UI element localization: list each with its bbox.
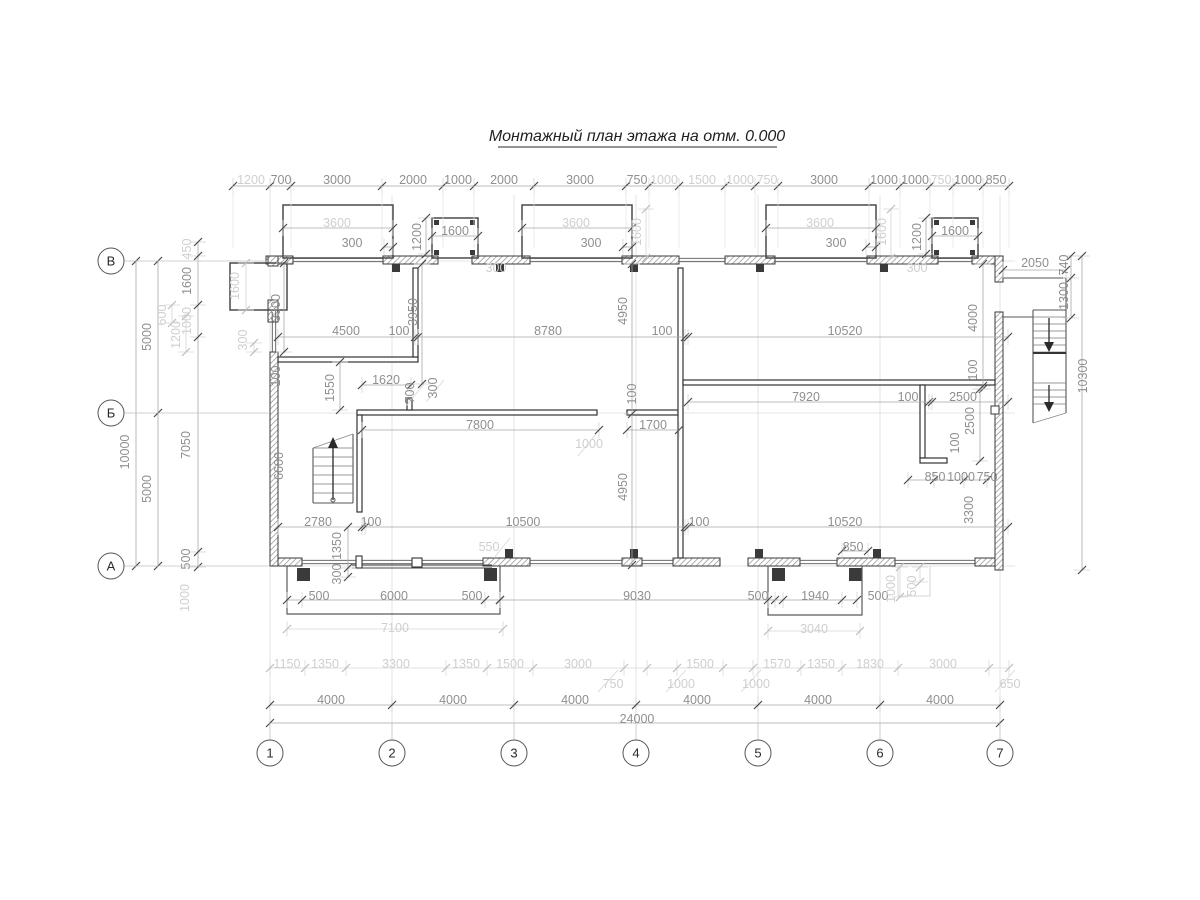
drawing-sheet: Монтажный план этажа на отм. 0.000 12007…: [0, 0, 1200, 900]
dimension-label: 1200: [910, 223, 924, 251]
dimension-label: 3000: [564, 657, 592, 671]
dimension-label: 850: [843, 540, 864, 554]
dimension-label: 500: [462, 589, 483, 603]
dimension-label: 300: [236, 330, 250, 351]
pilaster: [873, 549, 881, 558]
wall-segment: [748, 558, 800, 566]
axis-label: 7: [996, 746, 1003, 761]
dimension-label: 1350: [452, 657, 480, 671]
dimension-label: 2780: [304, 515, 332, 529]
dimension-label: 1000: [178, 584, 192, 612]
dimension-label: 1000: [947, 470, 975, 484]
partition-wall: [357, 415, 362, 512]
dimension-label: 3000: [566, 173, 594, 187]
dimension-label: 600: [155, 305, 169, 326]
dimension-label: 4950: [616, 473, 630, 501]
dimension-label: 1150: [274, 657, 301, 671]
wall-segment: [673, 558, 720, 566]
dimension-label: 1300: [1057, 282, 1071, 310]
exterior-walls: [266, 256, 1003, 581]
partition-wall: [683, 380, 995, 385]
dimension-label: 100: [269, 366, 283, 387]
dimension-label: 1600: [441, 224, 469, 238]
dimension-label: 3950: [406, 298, 420, 326]
dimension-label: 4500: [332, 324, 360, 338]
dimension-label: 500: [748, 589, 769, 603]
partition-wall: [920, 385, 925, 458]
dimension-label: 100: [652, 324, 673, 338]
dimension-label: 750: [627, 173, 648, 187]
dimension-label: 1620: [372, 373, 400, 387]
dimension-label: 6600: [272, 452, 286, 480]
dimension-label: 3300: [382, 657, 410, 671]
dimension-label: 3600: [806, 216, 834, 230]
dimension-label: 7800: [466, 418, 494, 432]
wall-segment: [995, 256, 1003, 282]
dimension-label: 1000: [742, 677, 770, 691]
drawing-title: Монтажный план этажа на отм. 0.000: [489, 128, 785, 147]
dimension-label: 7100: [381, 621, 409, 635]
porch-column: [484, 568, 497, 581]
wall-niche: [991, 406, 999, 414]
dimension-labels: 1200700300020001000200030007501000150010…: [118, 173, 1090, 726]
axis-label: 3: [510, 746, 517, 761]
dimension-label: 2000: [399, 173, 427, 187]
dimension-label: 1000: [884, 575, 898, 603]
dimension-label: 2000: [490, 173, 518, 187]
dimension-label: 24000: [620, 712, 655, 726]
dimension-label: 1600: [180, 267, 194, 295]
dimension-label: 1550: [323, 374, 337, 402]
pilaster: [880, 264, 888, 272]
wall-segment: [837, 558, 895, 566]
dimension-label: 100: [361, 515, 382, 529]
dimension-label: 1350: [330, 532, 344, 560]
dimension-label: 5000: [140, 323, 154, 351]
porch-column: [849, 568, 862, 581]
dimension-label: 300: [342, 236, 363, 250]
partition-wall: [920, 458, 947, 463]
canopy-columns: [434, 220, 975, 255]
partition-wall: [357, 410, 597, 415]
dimension-label: 1350: [807, 657, 835, 671]
dimension-label: 500: [905, 576, 919, 597]
dimension-label: 1000: [870, 173, 898, 187]
dimension-label: 1700: [639, 418, 667, 432]
dimension-label: 100: [898, 390, 919, 404]
balcony-outline: [283, 205, 393, 258]
axis-label: А: [107, 559, 116, 574]
dimension-label: 500: [309, 589, 330, 603]
dimension-label: 4000: [804, 693, 832, 707]
dimension-label: 550: [479, 540, 500, 554]
dimension-label: 3600: [323, 216, 351, 230]
dimension-label: 850: [925, 470, 946, 484]
dimension-label: 1000: [954, 173, 982, 187]
dimension-label: 3300: [269, 294, 283, 322]
dimension-label: 700: [271, 173, 292, 187]
partition-wall: [278, 357, 418, 362]
dimension-label: 4000: [439, 693, 467, 707]
dimension-label: 1000: [575, 437, 603, 451]
pilaster: [392, 264, 400, 272]
dimension-label: 4000: [926, 693, 954, 707]
dimension-label: 4000: [683, 693, 711, 707]
dimension-label: 3000: [810, 173, 838, 187]
dimension-label: 4000: [966, 304, 980, 332]
balcony-outline: [522, 205, 632, 258]
dimension-label: 10300: [1076, 359, 1090, 394]
dimension-label: 300: [426, 378, 440, 399]
dimension-label: 1600: [941, 224, 969, 238]
axis-label: 4: [632, 746, 639, 761]
dimension-label: 700: [403, 383, 417, 404]
axis-label: Б: [107, 406, 116, 421]
dimension-label: 2050: [1021, 256, 1049, 270]
dimension-label: 750: [603, 677, 624, 691]
dimension-label: 8780: [534, 324, 562, 338]
dimension-label: 3040: [800, 622, 828, 636]
dimension-label: 1570: [763, 657, 791, 671]
dimension-label: 7920: [792, 390, 820, 404]
dimension-label: 1200: [410, 223, 424, 251]
dimension-label: 750: [757, 173, 778, 187]
wall-segment: [268, 256, 278, 266]
dimension-label: 100: [625, 384, 639, 405]
pilaster: [505, 549, 513, 558]
line: [1033, 413, 1066, 423]
dimension-label: 1500: [496, 657, 524, 671]
stair-down-arrow: [1044, 342, 1054, 352]
dimension-label: 1000: [650, 173, 678, 187]
dimension-label: 740: [1057, 255, 1071, 276]
dimension-label: 1600: [875, 218, 889, 246]
dimension-label: 1600: [228, 272, 242, 300]
stair-down-arrow: [1044, 402, 1054, 412]
dimension-label: 4950: [616, 297, 630, 325]
dimension-label: 1830: [856, 657, 884, 671]
dimension-label: 1000: [667, 677, 695, 691]
pilaster: [630, 549, 638, 558]
dimension-label: 1600: [630, 218, 644, 246]
dimension-label: 10000: [118, 435, 132, 470]
railing-post: [356, 556, 362, 568]
dimension-label: 1200: [169, 321, 183, 349]
pilaster: [756, 264, 764, 272]
dimension-label: 100: [948, 433, 962, 454]
dimension-label: 3600: [562, 216, 590, 230]
dimension-label: 1200: [237, 173, 265, 187]
partition-wall: [678, 268, 683, 558]
dimension-label: 10500: [506, 515, 541, 529]
dimension-label: 100: [689, 515, 710, 529]
dimension-label: 3000: [323, 173, 351, 187]
dimension-label: 1500: [688, 173, 716, 187]
dimension-label: 1350: [311, 657, 339, 671]
axis-label: 1: [266, 746, 273, 761]
wall-segment: [725, 256, 775, 264]
wall-segment: [383, 256, 438, 264]
dimension-label: 2500: [949, 390, 977, 404]
dimension-label: 300: [581, 236, 602, 250]
dimension-label: 300: [907, 261, 928, 275]
dimension-label: 7050: [179, 431, 193, 459]
dimension-label: 10520: [828, 324, 863, 338]
dimension-label: 100: [966, 360, 980, 381]
dimension-label: 300: [486, 261, 507, 275]
dimension-label: 10520: [828, 515, 863, 529]
dimension-label: 1500: [686, 657, 714, 671]
dimension-label: 3000: [929, 657, 957, 671]
pilaster: [755, 549, 763, 558]
dimension-label: 9030: [623, 589, 651, 603]
axis-label: В: [107, 254, 116, 269]
railing-post: [412, 558, 422, 567]
dimension-label: 1000: [726, 173, 754, 187]
porch-column: [772, 568, 785, 581]
wall-segment: [622, 256, 679, 264]
dimension-label: 4000: [561, 693, 589, 707]
dimension-label: 450: [180, 239, 194, 260]
axis-label: 6: [876, 746, 883, 761]
dimension-label: 1940: [801, 589, 829, 603]
dimension-label: 6000: [380, 589, 408, 603]
dimension-label: 1000: [901, 173, 929, 187]
dimension-label: 850: [986, 173, 1007, 187]
dimension-label: 2500: [963, 407, 977, 435]
floor-plan-drawing: Монтажный план этажа на отм. 0.000 12007…: [0, 0, 1200, 900]
axis-label: 2: [388, 746, 395, 761]
wall-segment: [995, 312, 1003, 570]
dimension-label: 300: [826, 236, 847, 250]
porch-column: [297, 568, 310, 581]
balcony-outline: [766, 205, 876, 258]
page-title: Монтажный план этажа на отм. 0.000: [489, 128, 785, 145]
dimension-label: 4000: [317, 693, 345, 707]
dimension-label: 650: [1000, 677, 1021, 691]
axis-label: 5: [754, 746, 761, 761]
dimension-label: 300: [330, 564, 344, 585]
dimension-label: 750: [977, 470, 998, 484]
dimension-label: 3300: [962, 496, 976, 524]
dimension-label: 1000: [444, 173, 472, 187]
dimension-label: 750: [931, 173, 952, 187]
dimension-label: 5000: [140, 475, 154, 503]
